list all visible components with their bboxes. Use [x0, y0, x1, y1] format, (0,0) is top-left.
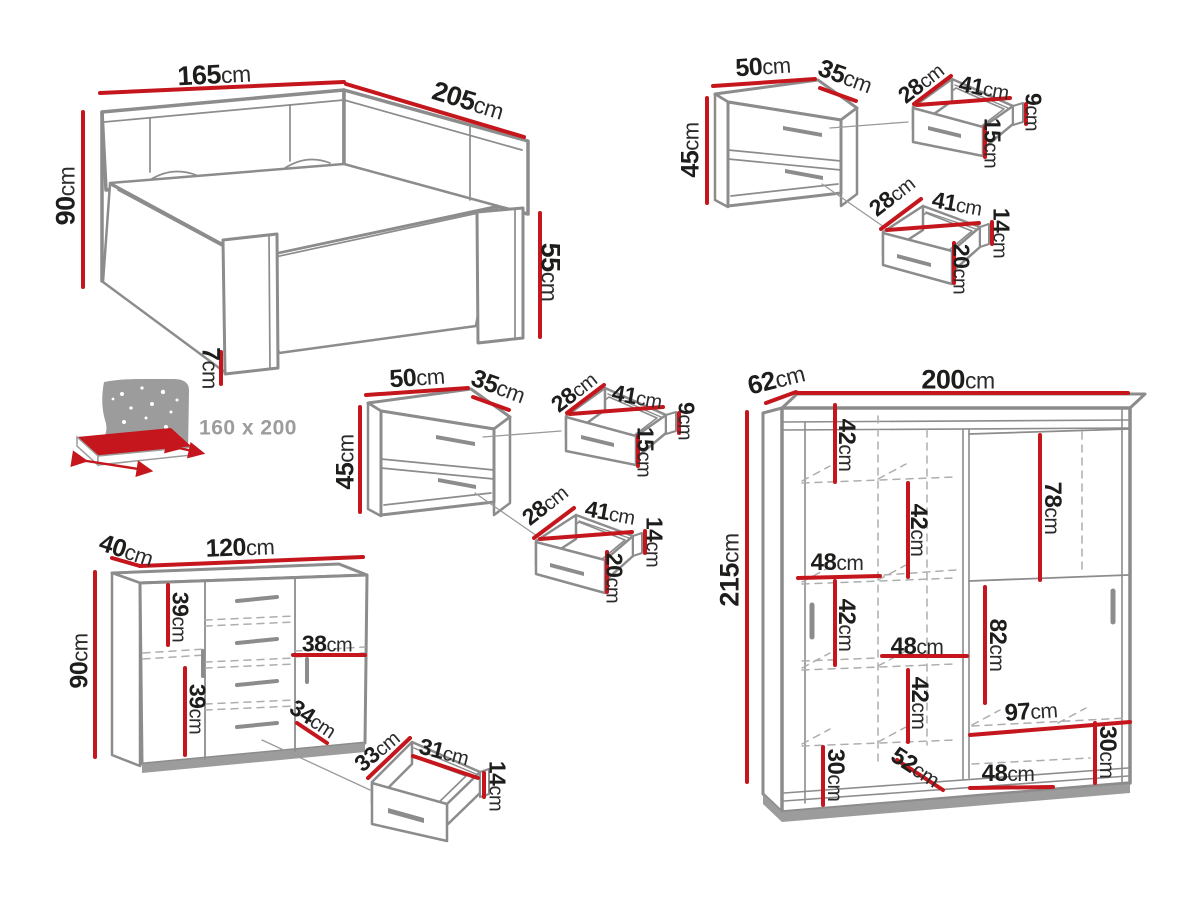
- dimension-label: 45cm: [334, 434, 359, 489]
- dimension-value: 48: [811, 549, 837, 576]
- dimension-value: 42: [833, 599, 860, 625]
- dimension-unit: cm: [718, 533, 744, 563]
- furniture-dimension-diagram: 160 x 200 165cm205cm90cm55cm7cm50cm35cm4…: [0, 0, 1200, 899]
- dimension-value: 82: [984, 619, 1011, 645]
- dimension-value: 48: [982, 760, 1008, 787]
- dimension-value: 215: [715, 563, 745, 607]
- dimension-label: 39cm: [169, 592, 192, 642]
- dimension-unit: cm: [68, 633, 93, 661]
- dimension-label: 20cm: [603, 553, 626, 603]
- dimension-label: 120cm: [205, 534, 274, 561]
- dimension-label: 82cm: [985, 619, 1009, 672]
- dimension-value: 14: [485, 761, 511, 786]
- dimension-value: 50: [734, 53, 763, 83]
- dimension-unit: cm: [981, 79, 1010, 105]
- dimension-value: 200: [921, 365, 965, 395]
- nightstand-drawing: [707, 76, 1026, 284]
- dimension-value: 39: [168, 592, 194, 617]
- dimension-value: 50: [388, 364, 417, 394]
- dimension-value: 39: [185, 684, 211, 709]
- dimension-value: 120: [205, 533, 246, 562]
- dimension-value: 9: [674, 402, 700, 414]
- dimension-label: 14cm: [990, 208, 1013, 258]
- dimension-value: 20: [602, 553, 628, 578]
- dimension-unit: cm: [980, 142, 1002, 168]
- dimension-label: 38cm: [302, 633, 352, 656]
- dimension-unit: cm: [642, 541, 664, 567]
- dimension-unit: cm: [1030, 699, 1059, 724]
- dimension-label: 200cm: [921, 367, 994, 394]
- dimension-value: 14: [989, 208, 1015, 233]
- dimension-unit: cm: [916, 636, 943, 659]
- dimension-label: 165cm: [177, 60, 252, 91]
- dimension-label: 20cm: [950, 244, 973, 294]
- dimension-label: 42cm: [834, 419, 858, 472]
- dimension-unit: cm: [537, 272, 563, 302]
- dimension-unit: cm: [989, 232, 1011, 258]
- dimension-label: 48cm: [891, 635, 944, 659]
- dimension-unit: cm: [985, 644, 1008, 671]
- dimension-value: 45: [332, 463, 360, 490]
- chest-drawing: [95, 557, 489, 841]
- dimension-label: 48cm: [811, 551, 864, 575]
- dimension-label: 48cm: [982, 762, 1035, 786]
- dimension-unit: cm: [965, 368, 995, 394]
- dimension-value: 55: [536, 243, 566, 272]
- dimension-unit: cm: [633, 451, 655, 477]
- dimension-value: 90: [51, 196, 81, 225]
- dimension-label: 97cm: [1004, 698, 1058, 726]
- dimension-label: 9cm: [1022, 93, 1045, 131]
- dimension-unit: cm: [607, 504, 636, 530]
- nightstand-drawing-2: [360, 385, 679, 593]
- dimension-unit: cm: [634, 388, 663, 414]
- dimension-unit: cm: [168, 616, 190, 642]
- dimension-value: 38: [302, 631, 327, 657]
- dimension-unit: cm: [1021, 105, 1043, 131]
- dimension-label: 14cm: [643, 517, 666, 567]
- mattress-size-icon: [77, 379, 197, 470]
- dimension-unit: cm: [246, 534, 275, 560]
- dimension-unit: cm: [485, 785, 507, 811]
- dimension-unit: cm: [679, 122, 704, 150]
- dimension-label: 42cm: [834, 599, 858, 652]
- dimension-value: 7: [197, 347, 225, 360]
- dimension-label: 15cm: [634, 427, 657, 477]
- dimension-value: 42: [906, 677, 933, 703]
- wardrobe-drawing: [747, 392, 1145, 822]
- dimension-label: 50cm: [735, 53, 792, 82]
- dimension-value: 9: [1021, 93, 1047, 105]
- dimension-unit: cm: [954, 195, 983, 221]
- bed-drawing: [83, 82, 540, 384]
- dimension-value: 42: [905, 504, 932, 530]
- dimension-unit: cm: [1007, 763, 1034, 786]
- dimension-label: 90cm: [53, 167, 80, 226]
- dimension-label: 30cm: [823, 749, 847, 802]
- dimension-label: 50cm: [389, 364, 446, 393]
- dimension-unit: cm: [1040, 507, 1063, 534]
- dimension-label: 55cm: [537, 243, 564, 302]
- dimension-unit: cm: [220, 61, 251, 89]
- dimension-label: 42cm: [907, 677, 931, 730]
- dimension-unit: cm: [334, 434, 359, 462]
- dimension-label: 45cm: [679, 122, 704, 177]
- dimension-unit: cm: [949, 268, 971, 294]
- dimension-value: 30: [822, 749, 849, 775]
- dimension-unit: cm: [326, 635, 352, 657]
- dimension-unit: cm: [836, 552, 863, 575]
- dimension-value: 165: [177, 59, 222, 91]
- dimension-unit: cm: [674, 414, 696, 440]
- dimension-value: 45: [677, 151, 705, 178]
- dimension-value: 15: [980, 118, 1006, 143]
- dimension-unit: cm: [198, 361, 223, 389]
- mattress-size-label: 160 x 200: [199, 418, 297, 439]
- dimension-unit: cm: [834, 624, 857, 651]
- dimension-label: 42cm: [906, 504, 930, 557]
- dimension-value: 97: [1004, 698, 1032, 727]
- dimension-label: 90cm: [68, 633, 93, 688]
- dimension-unit: cm: [415, 364, 445, 391]
- dimension-label: 215cm: [717, 533, 744, 606]
- dimension-unit: cm: [602, 577, 624, 603]
- dimension-unit: cm: [907, 702, 930, 729]
- dimension-label: 39cm: [186, 684, 209, 734]
- dimension-label: 78cm: [1040, 482, 1064, 535]
- dimension-unit: cm: [185, 708, 207, 734]
- dimension-value: 78: [1039, 482, 1066, 508]
- dimension-value: 15: [633, 427, 659, 452]
- dimension-unit: cm: [1095, 751, 1118, 778]
- dimension-value: 42: [833, 419, 860, 445]
- dimension-value: 90: [66, 662, 94, 689]
- dimension-value: 14: [642, 517, 668, 542]
- dimension-label: 7cm: [198, 347, 223, 389]
- dimension-label: 9cm: [675, 402, 698, 440]
- dimension-label: 14cm: [486, 761, 509, 811]
- dimension-unit: cm: [823, 774, 846, 801]
- dimension-label: 30cm: [1095, 726, 1119, 779]
- dimension-value: 20: [949, 244, 975, 269]
- dimension-value: 30: [1094, 726, 1121, 752]
- dimension-unit: cm: [906, 529, 929, 556]
- dimension-label: 15cm: [981, 118, 1004, 168]
- dimension-unit: cm: [834, 444, 857, 471]
- dimension-unit: cm: [54, 167, 80, 197]
- dimension-value: 48: [891, 633, 917, 660]
- dimension-unit: cm: [761, 53, 791, 80]
